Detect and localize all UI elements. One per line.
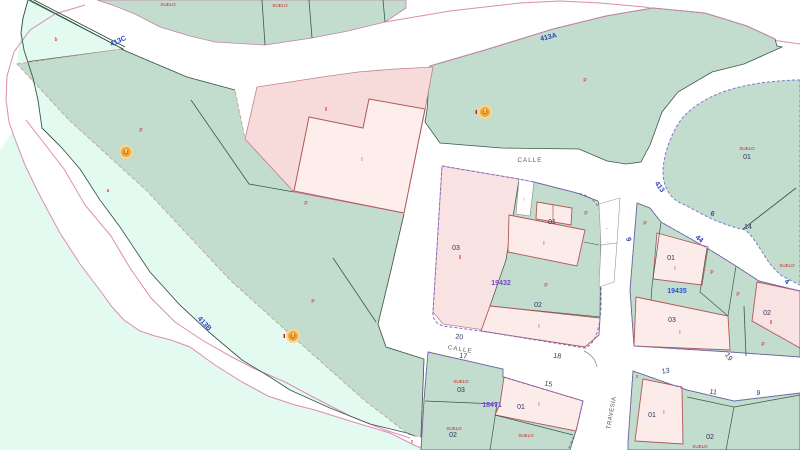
svg-text:SUELO: SUELO — [272, 3, 288, 8]
svg-text:03: 03 — [457, 387, 465, 394]
svg-text:I: I — [674, 266, 675, 272]
svg-text:I: I — [543, 241, 544, 247]
svg-text:SUELO: SUELO — [739, 146, 755, 151]
svg-text:CALLE: CALLE — [517, 158, 542, 164]
svg-text:18471: 18471 — [482, 402, 502, 409]
svg-text:01: 01 — [517, 404, 525, 411]
svg-text:I: I — [679, 330, 680, 336]
svg-text:←: ← — [606, 239, 611, 245]
svg-text:13: 13 — [661, 367, 670, 375]
svg-text:01: 01 — [743, 154, 751, 161]
svg-text:SUELO: SUELO — [779, 263, 795, 268]
svg-text:SUELO: SUELO — [518, 433, 534, 438]
svg-text:01: 01 — [648, 412, 656, 419]
svg-text:I: I — [538, 324, 539, 330]
svg-text:↑: ↑ — [523, 197, 526, 203]
svg-text:SUELO: SUELO — [692, 444, 708, 449]
svg-text:11: 11 — [709, 389, 717, 397]
svg-text:03: 03 — [668, 317, 676, 324]
svg-text:19435: 19435 — [667, 288, 687, 295]
svg-text:14: 14 — [744, 224, 752, 231]
svg-text:02: 02 — [534, 302, 542, 309]
svg-text:17: 17 — [459, 353, 468, 361]
svg-text:19432: 19432 — [491, 280, 511, 287]
svg-text:II: II — [459, 255, 462, 261]
svg-text:SUELO: SUELO — [160, 2, 176, 7]
svg-text:01: 01 — [548, 219, 556, 226]
svg-text:I: I — [663, 410, 664, 416]
svg-text:20: 20 — [455, 334, 464, 342]
svg-text:18: 18 — [553, 353, 562, 361]
svg-text:I: I — [538, 402, 539, 408]
svg-text:b: b — [55, 37, 58, 43]
svg-text:I: I — [361, 157, 362, 163]
svg-text:II: II — [770, 320, 773, 326]
svg-text:02: 02 — [763, 310, 771, 317]
svg-text:03: 03 — [452, 245, 460, 252]
svg-text:II: II — [325, 107, 328, 113]
svg-text:02: 02 — [449, 432, 457, 439]
svg-text:a: a — [107, 188, 110, 194]
svg-text:SUELO: SUELO — [446, 426, 462, 431]
svg-text:SUELO: SUELO — [453, 379, 469, 384]
svg-text:02: 02 — [706, 434, 714, 441]
svg-text:01: 01 — [667, 255, 675, 262]
